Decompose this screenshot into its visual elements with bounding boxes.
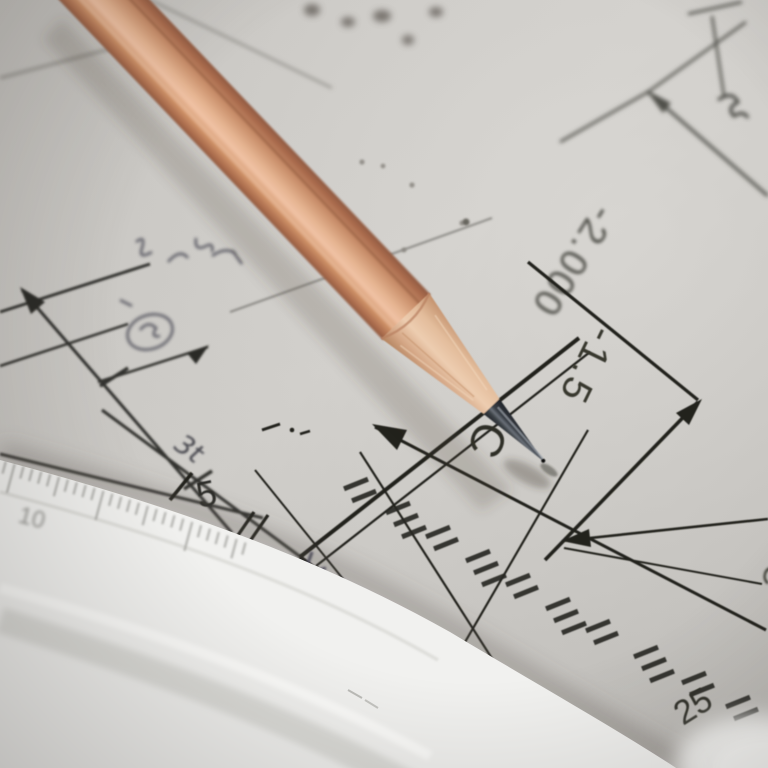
photo-pencil-on-blueprint: -2.000 — [0, 0, 768, 768]
vignette-overlay — [0, 0, 768, 768]
photo-canvas: -2.000 — [0, 0, 768, 768]
